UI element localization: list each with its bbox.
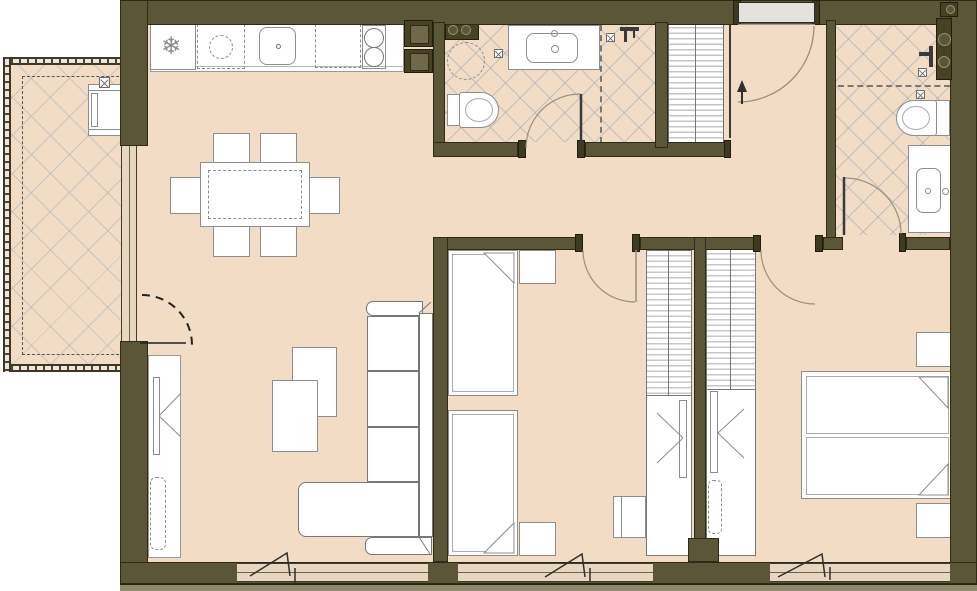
ac-unit-top-bar <box>88 90 122 91</box>
desk-divider <box>621 496 622 538</box>
pipe-circle <box>448 25 458 35</box>
bedroom1-top-wall <box>433 237 583 250</box>
ac-valve-icon <box>99 77 110 88</box>
bedroom1-left-wall <box>433 237 448 562</box>
single-bed-2-mattress <box>452 414 514 552</box>
floor-drain-icon <box>916 90 925 99</box>
shower1-stem <box>624 31 627 42</box>
coat-closet-center-line <box>695 22 696 148</box>
floor-drain-icon <box>494 49 503 58</box>
corridor-top-wall-a <box>433 142 518 157</box>
shower2-divider <box>838 85 950 87</box>
sofa-backrest <box>419 313 433 537</box>
sofa-cushion <box>367 371 419 427</box>
sink-drain-dot <box>276 44 281 49</box>
closet-edge-line <box>729 25 731 138</box>
wardrobe-2-center-line <box>730 248 731 390</box>
sofa-armrest-top <box>366 301 423 316</box>
dishwasher-circle <box>209 35 233 59</box>
pipe-circle <box>938 33 951 46</box>
storage-unit-door-bar <box>153 377 160 455</box>
faucet-dot <box>925 188 931 194</box>
wall-left-upper <box>120 0 148 146</box>
sofa-cushion <box>367 427 419 482</box>
exterior-strip <box>120 584 977 591</box>
toilet-tank-2 <box>935 100 950 136</box>
shower2-head-icon <box>929 46 933 67</box>
wardrobe-2-door-bar <box>710 391 718 473</box>
dining-chair <box>260 222 297 257</box>
door-jamb <box>815 235 823 252</box>
window-master <box>770 563 950 582</box>
dining-table-inner <box>208 170 302 219</box>
shower1-head-icon <box>620 27 639 31</box>
burner-2 <box>364 47 384 67</box>
nightstand <box>519 522 556 556</box>
shower1-stem2 <box>633 31 635 38</box>
burner-1 <box>364 28 384 48</box>
wardrobe-1-hanging <box>646 250 692 396</box>
wall-left-lower <box>120 341 148 591</box>
door-jamb <box>899 233 906 252</box>
pipe-circle <box>461 25 471 35</box>
window-living <box>237 563 428 582</box>
bathroom2-shaft <box>936 18 952 80</box>
sofa-cushion <box>367 316 419 371</box>
double-bed-mattress-2 <box>806 437 949 495</box>
wall-top <box>120 0 977 25</box>
kitchen-shaft-1-inner <box>410 25 429 44</box>
door-jamb <box>575 234 583 252</box>
door-jamb <box>753 235 761 252</box>
sofa-chaise <box>298 482 419 537</box>
toilet-bowl-2-inner <box>902 106 930 130</box>
bathroom2-bottom-wall <box>906 237 950 250</box>
shower1-divider <box>600 25 602 143</box>
fridge-snowflake-icon: ❄ <box>161 34 181 58</box>
floor-drain-icon <box>606 33 615 42</box>
nightstand <box>916 332 951 367</box>
wall-right <box>950 0 977 591</box>
door-jamb <box>577 140 585 158</box>
coat-closet <box>668 22 724 148</box>
bathroom2-left-wall <box>826 20 836 250</box>
faucet-dot <box>551 30 558 37</box>
vent-circle <box>946 5 955 14</box>
door-jamb <box>518 140 526 158</box>
dining-chair <box>305 177 340 214</box>
kitchen-shaft-2-inner <box>410 53 429 71</box>
balcony-railing-left <box>3 57 11 372</box>
ac-unit-bottom-bar <box>88 129 122 130</box>
wardrobe-2-hanging <box>706 248 756 390</box>
closet-jamb <box>724 140 731 158</box>
balcony-railing-top <box>3 57 128 65</box>
door-jamb <box>632 234 640 252</box>
shower2-stem <box>919 52 929 56</box>
wardrobe-2-bench <box>708 480 722 534</box>
entrance-threshold <box>738 24 815 25</box>
floor-drain-icon <box>918 68 927 77</box>
window-bedroom1 <box>458 563 653 582</box>
bathroom1-left-wall <box>433 22 445 157</box>
counter-space-2 <box>315 24 361 68</box>
coffee-table-2 <box>272 380 318 452</box>
balcony-door-glazing <box>121 146 137 341</box>
dining-chair <box>213 222 250 257</box>
wall-823-843 <box>823 237 843 250</box>
balcony-door-floor-patch <box>137 146 148 341</box>
nightstand <box>916 503 951 538</box>
middle-wall <box>694 237 706 562</box>
storage-unit-bench <box>150 477 166 550</box>
bathroom1-right-wall <box>655 22 668 148</box>
faucet-dot <box>942 188 949 195</box>
floor-plan: ❄ <box>0 0 977 591</box>
ac-unit-inner <box>91 93 98 127</box>
entrance-door-slab <box>738 2 815 23</box>
middle-wall-pier <box>688 538 719 562</box>
wardrobe-1-door-bar <box>679 400 687 478</box>
double-bed-mattress-1 <box>806 376 949 434</box>
pipe-circle <box>938 56 950 68</box>
toilet-bowl-inner <box>465 98 493 122</box>
single-bed-1-mattress <box>452 254 514 392</box>
nightstand <box>519 250 556 284</box>
balcony-railing-bottom <box>3 364 128 372</box>
wardrobe-1-center-line <box>668 250 669 396</box>
desk <box>613 496 646 538</box>
faucet-dot <box>551 45 559 53</box>
sofa-armrest-bottom <box>365 537 432 555</box>
washing-machine-space <box>447 42 485 80</box>
